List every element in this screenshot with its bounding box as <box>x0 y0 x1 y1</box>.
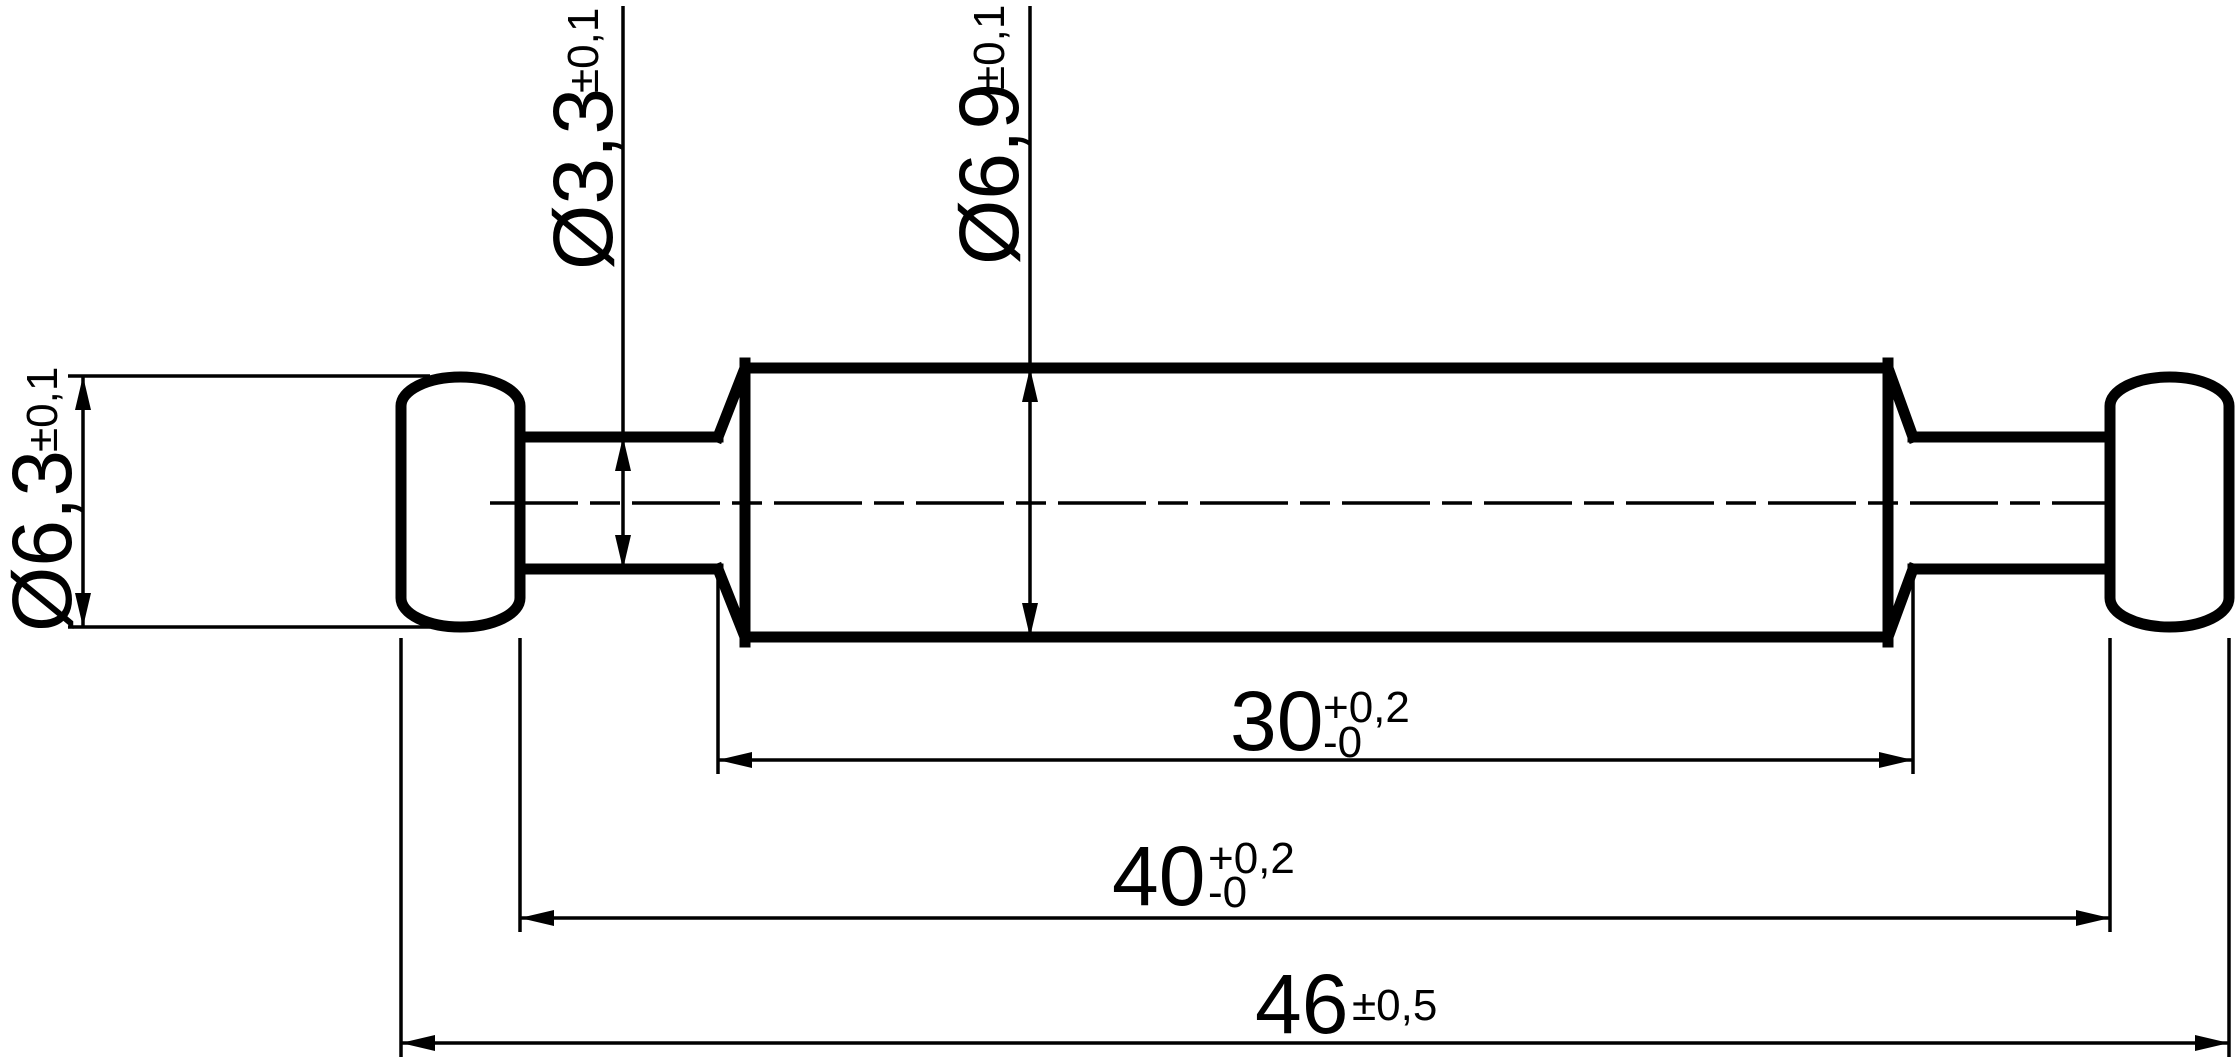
arrow-cap-top <box>75 376 91 410</box>
arrow-40-right <box>2076 910 2110 926</box>
label-inner-length: 40 +0,2 -0 <box>1112 829 1295 923</box>
dimension-labels: Ø3,3 ±0,1 Ø6,9 ±0,1 Ø6,3 ±0,1 30 +0,2 -0 <box>0 5 1437 1051</box>
right-cap-outline <box>2110 377 2229 627</box>
arrow-46-right <box>2195 1035 2229 1051</box>
cap-diameter-value: Ø6,3 <box>0 450 89 632</box>
body-length-tol-minus: -0 <box>1323 718 1362 767</box>
body-diameter-value: Ø6,9 <box>942 83 1036 265</box>
body-diameter-tolerance: ±0,1 <box>965 5 1014 90</box>
label-cap-diameter: Ø6,3 ±0,1 <box>0 367 89 632</box>
arrow-46-left <box>401 1035 435 1051</box>
label-overall-length: 46 ±0,5 <box>1255 957 1437 1051</box>
label-body-diameter: Ø6,9 ±0,1 <box>942 5 1036 265</box>
body-length-value: 30 <box>1230 674 1323 768</box>
neck-diameter-tolerance: ±0,1 <box>559 8 608 93</box>
technical-drawing: Ø3,3 ±0,1 Ø6,9 ±0,1 Ø6,3 ±0,1 30 +0,2 -0 <box>0 0 2238 1063</box>
inner-length-value: 40 <box>1112 829 1205 923</box>
inner-length-tol-minus: -0 <box>1208 868 1247 917</box>
overall-length-tolerance: ±0,5 <box>1352 981 1437 1030</box>
arrow-30-left <box>718 752 752 768</box>
cap-diameter-tolerance: ±0,1 <box>18 367 67 452</box>
drawing-canvas: Ø3,3 ±0,1 Ø6,9 ±0,1 Ø6,3 ±0,1 30 +0,2 -0 <box>0 0 2238 1063</box>
label-neck-diameter: Ø3,3 ±0,1 <box>536 8 630 270</box>
neck-diameter-value: Ø3,3 <box>536 88 630 270</box>
label-body-length: 30 +0,2 -0 <box>1230 674 1410 768</box>
overall-length-value: 46 <box>1255 957 1348 1051</box>
arrow-40-left <box>520 910 554 926</box>
arrow-30-right <box>1879 752 1913 768</box>
